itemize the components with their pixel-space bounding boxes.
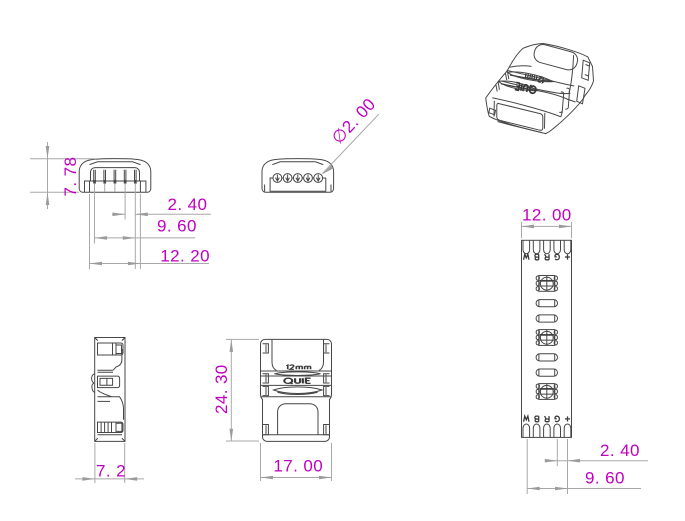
svg-text:2. 40: 2. 40 — [600, 441, 640, 460]
svg-text:9. 60: 9. 60 — [585, 469, 625, 488]
svg-text:7. 2: 7. 2 — [96, 462, 126, 481]
svg-text:9. 60: 9. 60 — [157, 217, 197, 236]
svg-text:12. 20: 12. 20 — [160, 246, 210, 265]
svg-text:17. 00: 17. 00 — [273, 457, 323, 476]
svg-text:24. 30: 24. 30 — [212, 364, 231, 414]
svg-text:2. 40: 2. 40 — [168, 195, 208, 214]
svg-text:7. 78: 7. 78 — [61, 157, 80, 197]
svg-text:12. 00: 12. 00 — [522, 206, 572, 225]
